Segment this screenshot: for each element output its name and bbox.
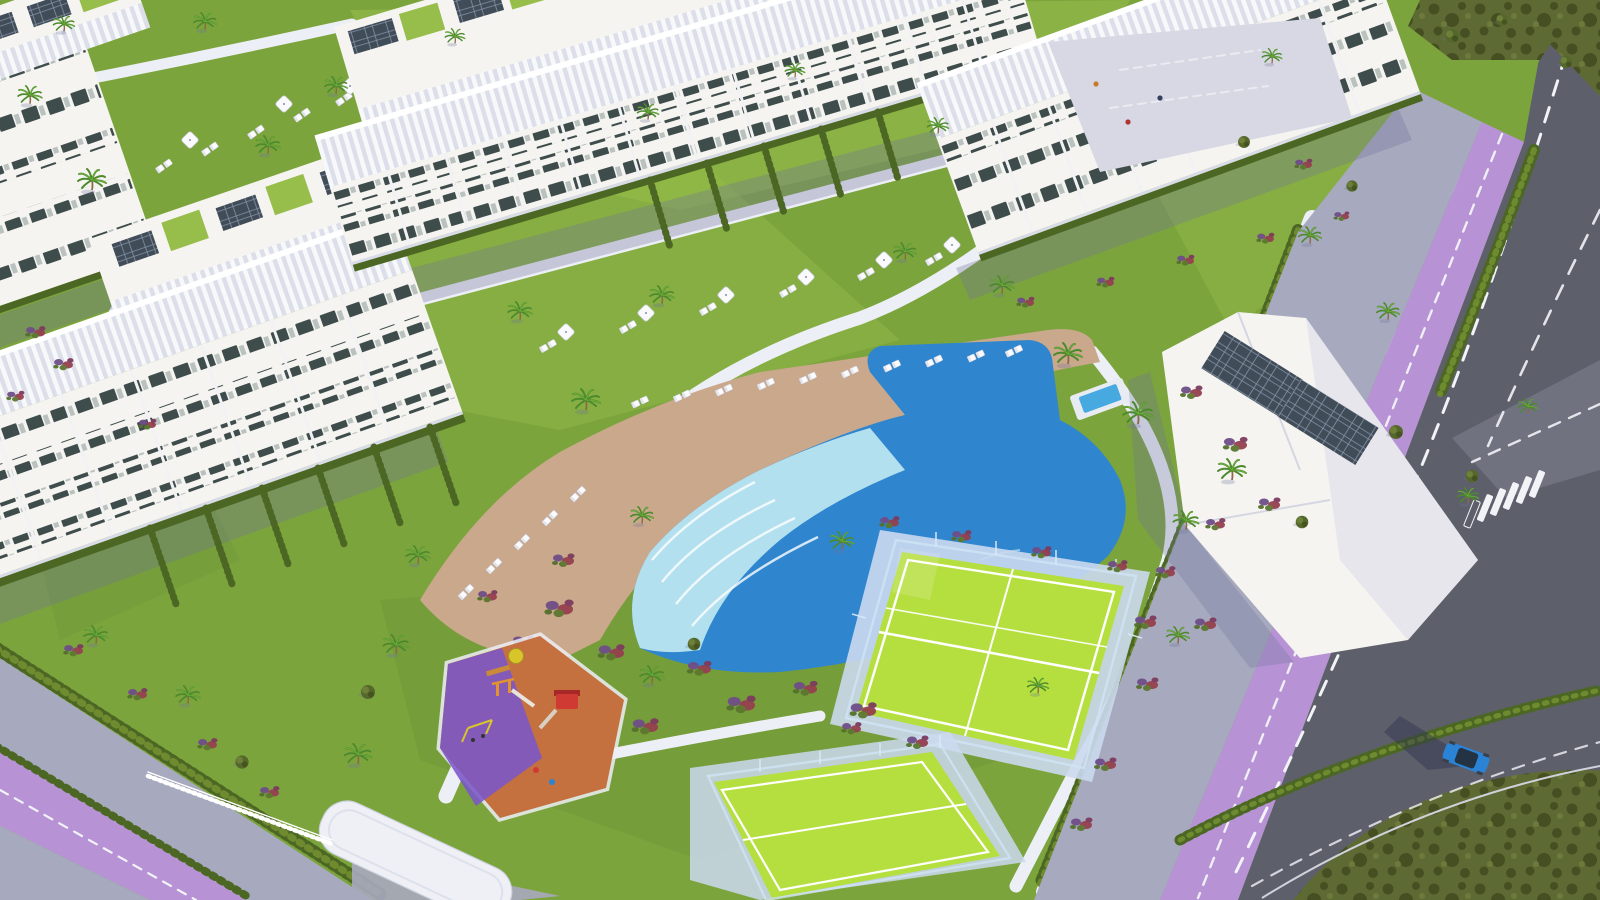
- person: [1093, 81, 1098, 86]
- playhouse: [556, 694, 578, 709]
- spring-rider: [533, 767, 539, 773]
- aerial-render: [0, 0, 1600, 900]
- person: [1157, 95, 1162, 100]
- spring-rider: [549, 779, 555, 785]
- person: [1125, 119, 1130, 124]
- play-parasol: [509, 649, 524, 664]
- render-stage: [0, 0, 1600, 900]
